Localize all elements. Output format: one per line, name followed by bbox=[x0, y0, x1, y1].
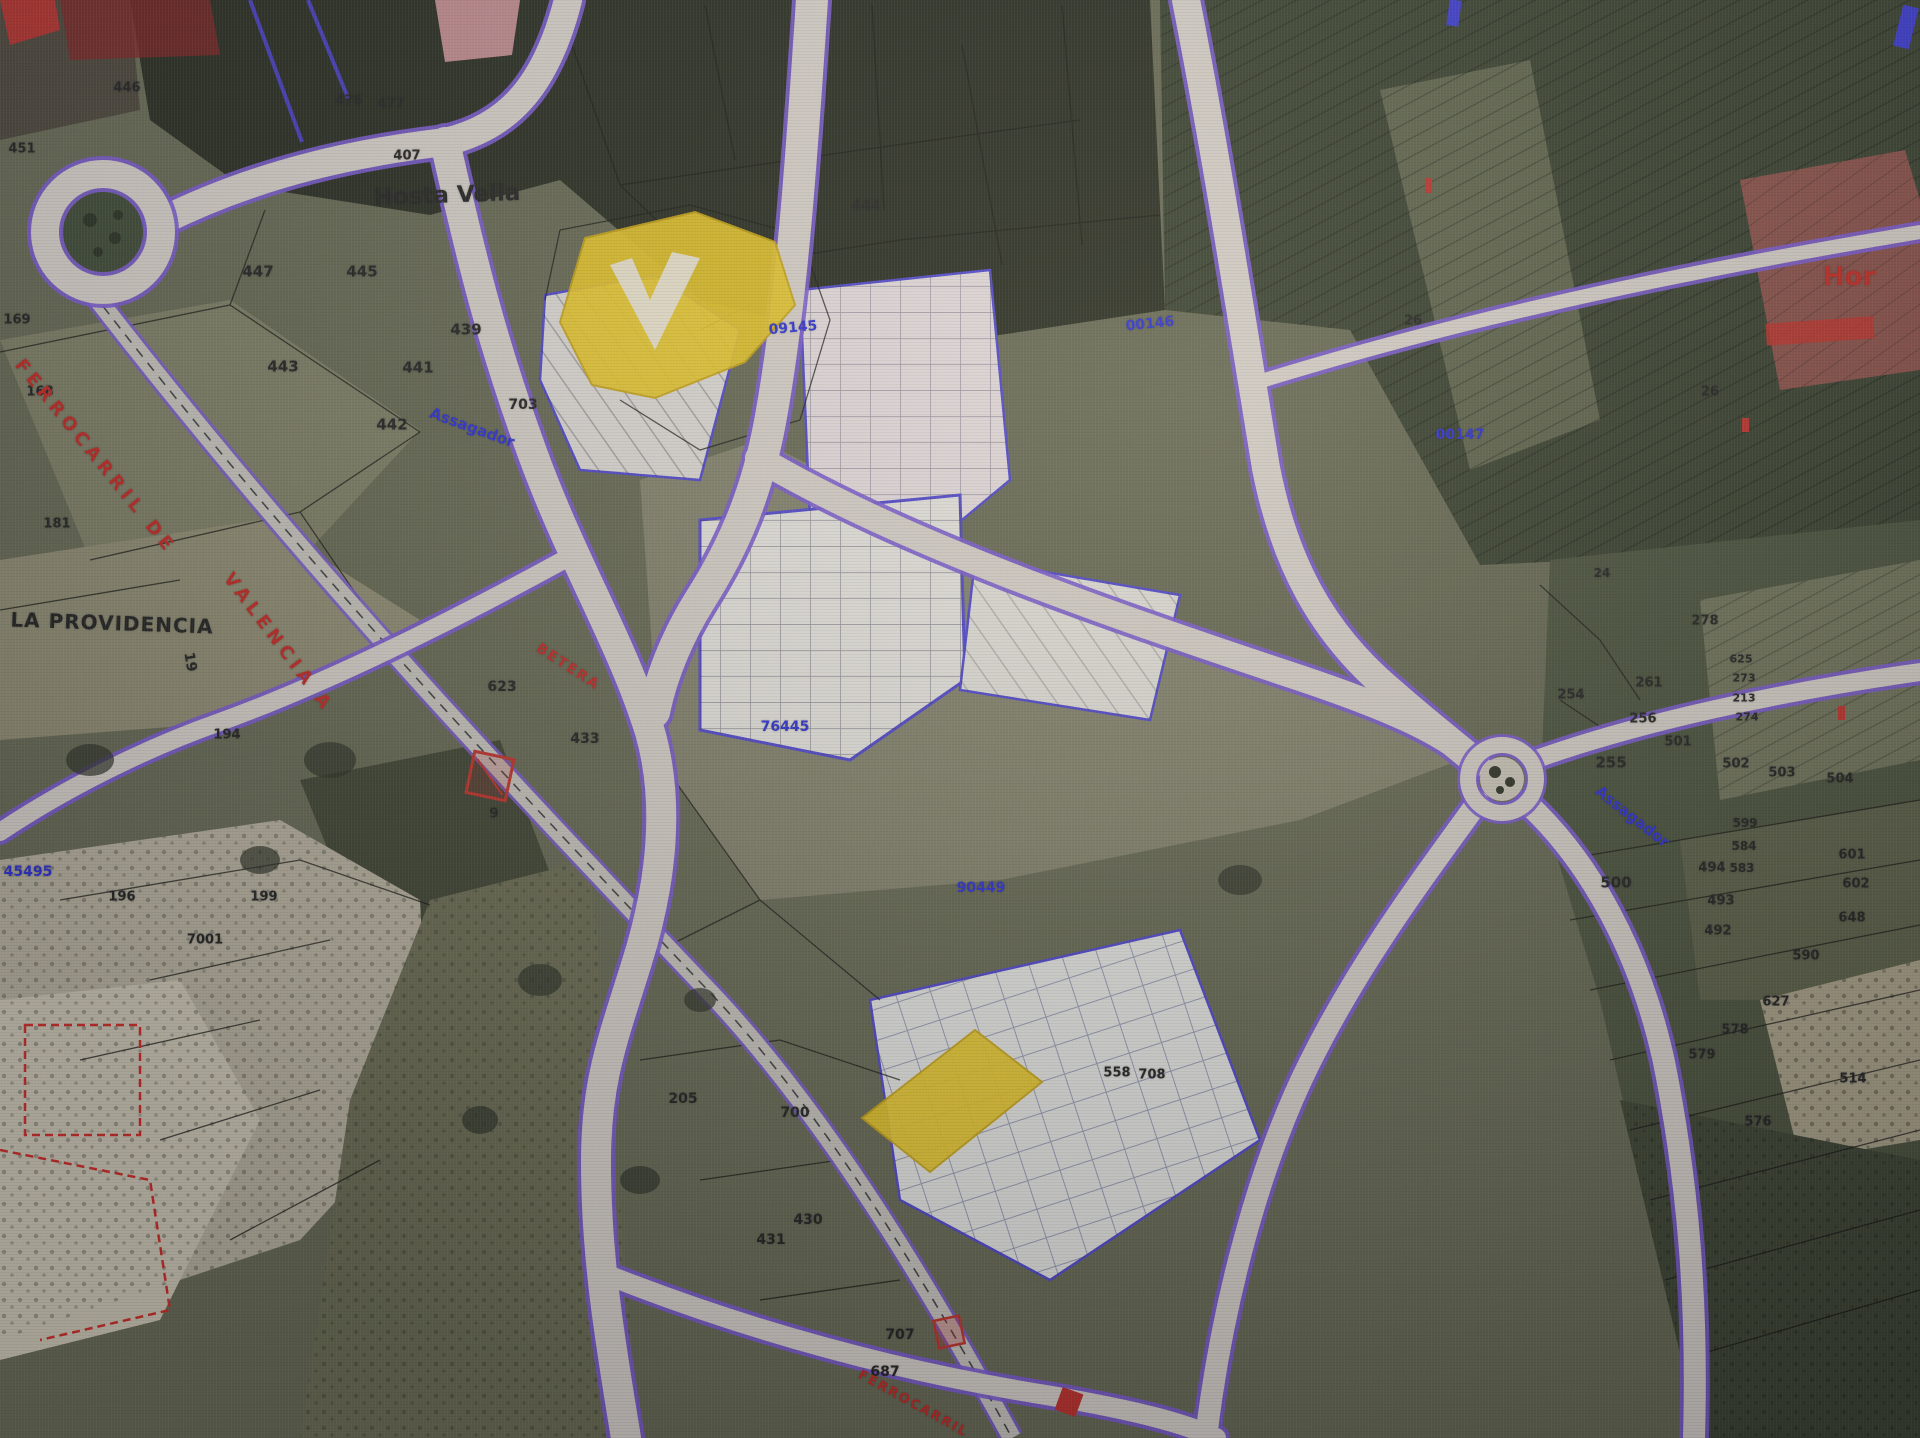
roundabout-east bbox=[1468, 745, 1536, 813]
cadastral-map-photo[interactable]: Hosta VellaLA PROVIDENCIAHor451446476477… bbox=[0, 0, 1920, 1438]
map-canvas[interactable] bbox=[0, 0, 1920, 1438]
roundabout-northwest bbox=[45, 174, 161, 290]
